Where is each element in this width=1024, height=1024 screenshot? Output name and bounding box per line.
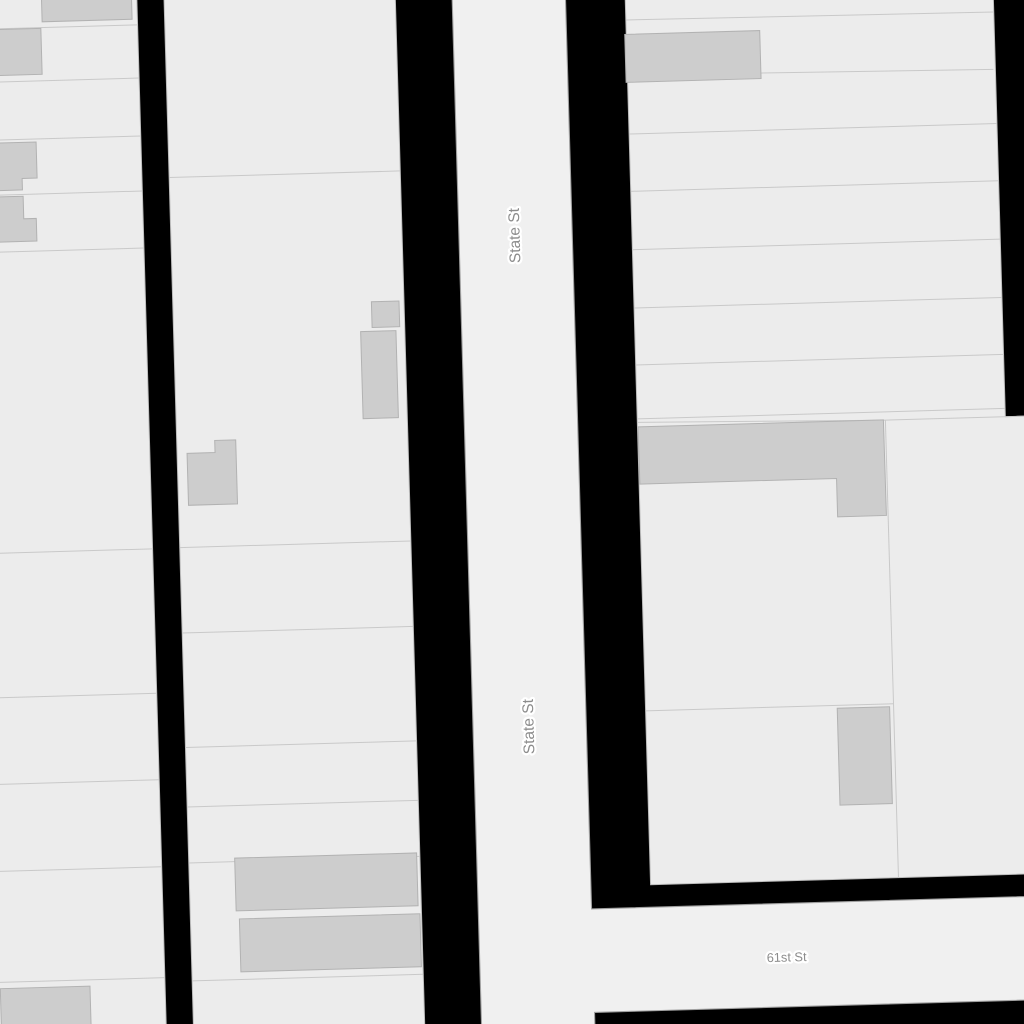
svg-text:State St: State St — [506, 207, 525, 263]
svg-text:State St: State St — [520, 698, 539, 754]
svg-text:61st St: 61st St — [766, 949, 807, 965]
